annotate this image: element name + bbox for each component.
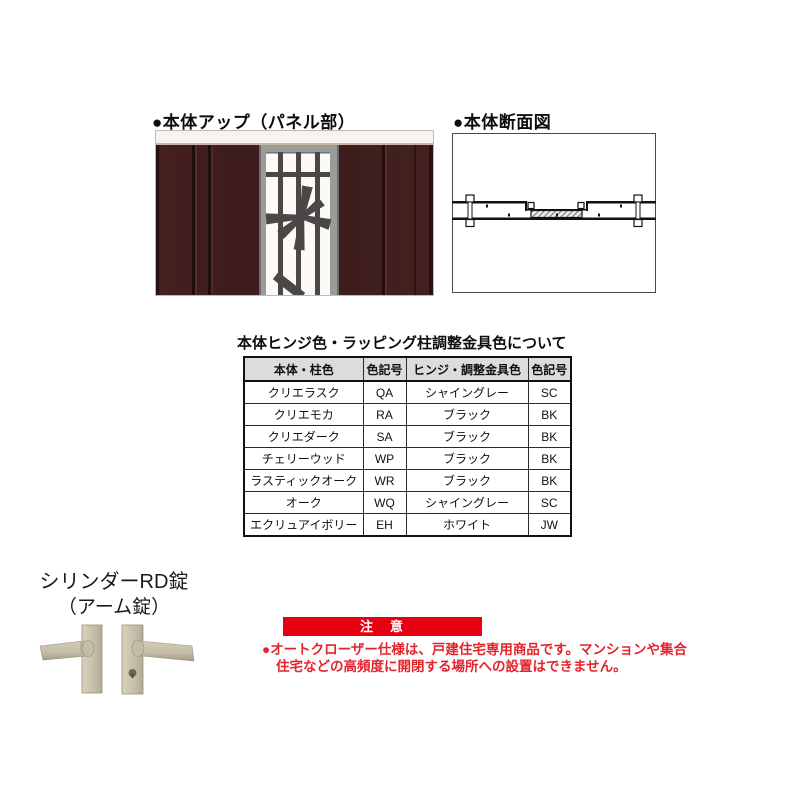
exterior-handle xyxy=(122,625,194,694)
table-row: エクリュアイボリーEHホワイトJW xyxy=(244,514,571,537)
table-cell: シャイングレー xyxy=(406,492,528,514)
handles-illustration xyxy=(36,620,198,700)
table-cell: ブラック xyxy=(406,404,528,426)
table-cell: ラスティックオーク xyxy=(244,470,363,492)
caution-band: 注 意 xyxy=(283,617,482,636)
cross-section-heading: ●本体断面図 xyxy=(453,108,551,133)
cross-section-diagram xyxy=(452,133,656,293)
table-cell: RA xyxy=(363,404,406,426)
table-cell: BK xyxy=(528,404,571,426)
table-header-cell: 色記号 xyxy=(363,357,406,381)
lock-name-label: シリンダーRD錠 （アーム錠） xyxy=(28,570,200,620)
lock-name-line2: （アーム錠） xyxy=(28,595,200,620)
table-row: チェリーウッドWPブラックBK xyxy=(244,448,571,470)
table-cell: WR xyxy=(363,470,406,492)
wall-strip xyxy=(156,131,433,143)
table-cell: エクリュアイボリー xyxy=(244,514,363,537)
table-header-row: 本体・柱色色記号ヒンジ・調整金具色色記号 xyxy=(244,357,571,381)
table-header-cell: 本体・柱色 xyxy=(244,357,363,381)
table-cell: EH xyxy=(363,514,406,537)
table-cell: BK xyxy=(528,426,571,448)
table-row: オークWQシャイングレーSC xyxy=(244,492,571,514)
table-row: クリエダークSAブラックBK xyxy=(244,426,571,448)
table-cell: ブラック xyxy=(406,448,528,470)
table-row: クリエモカRAブラックBK xyxy=(244,404,571,426)
table-cell: チェリーウッド xyxy=(244,448,363,470)
caution-line1: ●オートクローザー仕様は、戸建住宅専用商品です。マンションや集合 xyxy=(262,641,692,658)
door-panel-image xyxy=(155,130,434,296)
product-spec-sheet: ●本体アップ（パネル部） xyxy=(0,0,800,801)
hinge-color-table: 本体・柱色色記号ヒンジ・調整金具色色記号 クリエラスクQAシャイングレーSCクリ… xyxy=(243,356,572,537)
caution-text: ●オートクローザー仕様は、戸建住宅専用商品です。マンションや集合 住宅などの高頻… xyxy=(262,641,692,675)
door-panel-illustration xyxy=(156,131,433,295)
table-title: 本体ヒンジ色・ラッピング柱調整金具色について xyxy=(237,332,567,353)
table-cell: シャイングレー xyxy=(406,381,528,404)
table-cell: QA xyxy=(363,381,406,404)
table-cell: ブラック xyxy=(406,426,528,448)
table-cell: ブラック xyxy=(406,470,528,492)
table-cell: クリエラスク xyxy=(244,381,363,404)
table-header-cell: ヒンジ・調整金具色 xyxy=(406,357,528,381)
interior-handle xyxy=(40,625,102,693)
table-body: クリエラスクQAシャイングレーSCクリエモカRAブラックBKクリエダークSAブラ… xyxy=(244,381,571,536)
table-cell: オーク xyxy=(244,492,363,514)
table-cell: JW xyxy=(528,514,571,537)
table-row: ラスティックオークWRブラックBK xyxy=(244,470,571,492)
table-header-cell: 色記号 xyxy=(528,357,571,381)
table-cell: クリエダーク xyxy=(244,426,363,448)
table-cell: ホワイト xyxy=(406,514,528,537)
table-cell: WP xyxy=(363,448,406,470)
cross-section-illustration xyxy=(452,133,656,293)
table-cell: BK xyxy=(528,470,571,492)
table-cell: SC xyxy=(528,492,571,514)
caution-line2: 住宅などの高頻度に開閉する場所への設置はできません。 xyxy=(262,658,692,675)
table-cell: SC xyxy=(528,381,571,404)
lock-name-line1: シリンダーRD錠 xyxy=(28,570,200,595)
table-cell: WQ xyxy=(363,492,406,514)
table-cell: クリエモカ xyxy=(244,404,363,426)
table-row: クリエラスクQAシャイングレーSC xyxy=(244,381,571,404)
door-handles-image xyxy=(36,620,198,700)
table-cell: SA xyxy=(363,426,406,448)
table-cell: BK xyxy=(528,448,571,470)
